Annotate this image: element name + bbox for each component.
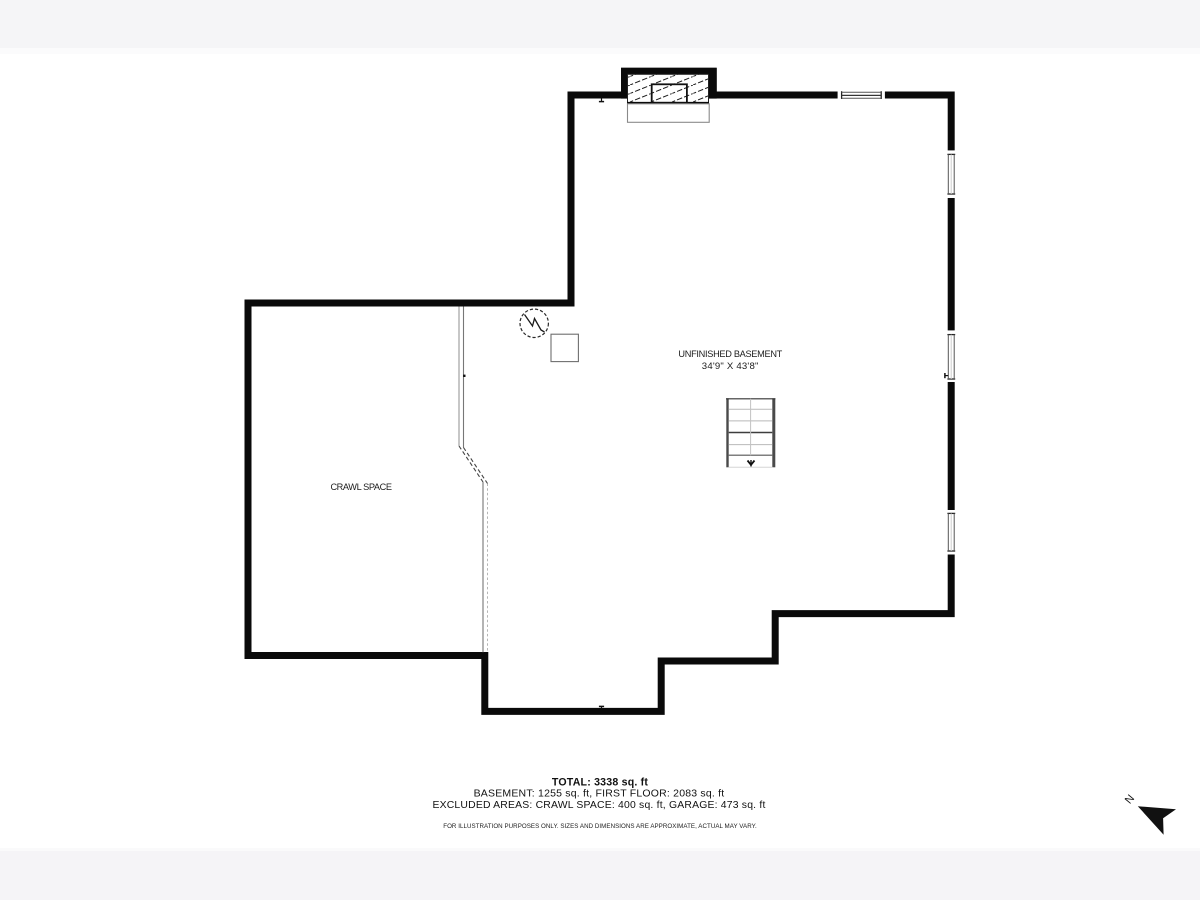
svg-text:UNFINISHED BASEMENT: UNFINISHED BASEMENT bbox=[678, 349, 782, 359]
svg-text:TOTAL: 3338 sq. ft: TOTAL: 3338 sq. ft bbox=[552, 776, 648, 788]
svg-text:CRAWL SPACE: CRAWL SPACE bbox=[330, 482, 391, 492]
svg-text:FOR ILLUSTRATION PURPOSES ONLY: FOR ILLUSTRATION PURPOSES ONLY. SIZES AN… bbox=[443, 823, 757, 830]
svg-text:EXCLUDED AREAS: CRAWL SPACE: 4: EXCLUDED AREAS: CRAWL SPACE: 400 sq. ft,… bbox=[432, 800, 765, 811]
svg-text:34'9" X 43'8": 34'9" X 43'8" bbox=[702, 361, 759, 372]
svg-text:BASEMENT: 1255 sq. ft, FIRST F: BASEMENT: 1255 sq. ft, FIRST FLOOR: 2083… bbox=[474, 788, 725, 800]
